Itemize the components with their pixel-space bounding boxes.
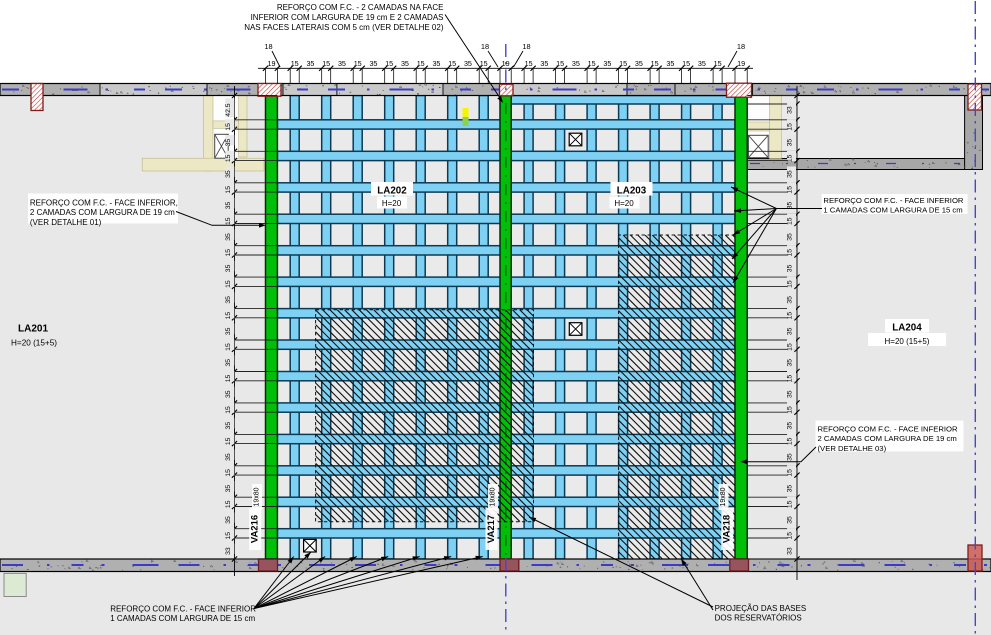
svg-text:REFORÇO COM F.C. - FACE INFERI: REFORÇO COM F.C. - FACE INFERIOR,: [30, 198, 178, 207]
svg-text:REFORÇO COM F.C. - FACE INFERI: REFORÇO COM F.C. - FACE INFERIOR: [823, 196, 964, 205]
svg-text:15: 15: [322, 59, 330, 68]
svg-text:H=20: H=20: [382, 199, 402, 208]
svg-text:15: 15: [787, 217, 794, 225]
svg-text:35: 35: [225, 264, 232, 272]
svg-text:LA203: LA203: [617, 186, 647, 197]
svg-text:35: 35: [225, 296, 232, 304]
svg-text:VA217: VA217: [486, 515, 497, 543]
svg-text:35: 35: [787, 485, 794, 493]
svg-text:1 CAMADAS COM LARGURA DE 15 cm: 1 CAMADAS COM LARGURA DE 15 cm: [110, 614, 255, 623]
svg-text:35: 35: [666, 59, 674, 68]
svg-text:LA201: LA201: [18, 324, 48, 335]
svg-text:35: 35: [225, 453, 232, 461]
svg-text:15: 15: [556, 59, 564, 68]
svg-text:15: 15: [225, 500, 232, 508]
svg-text:(VER DETALHE 03): (VER DETALHE 03): [818, 444, 887, 453]
svg-text:15: 15: [525, 59, 533, 68]
svg-text:35: 35: [225, 233, 232, 241]
svg-text:15: 15: [787, 532, 794, 540]
svg-text:H=20: H=20: [614, 199, 634, 208]
svg-text:15: 15: [225, 343, 232, 351]
svg-text:15: 15: [588, 59, 596, 68]
svg-text:15: 15: [787, 469, 794, 477]
svg-text:LA202: LA202: [377, 186, 407, 197]
svg-text:19: 19: [737, 59, 745, 68]
svg-text:35: 35: [369, 59, 377, 68]
svg-text:19: 19: [268, 59, 276, 68]
svg-text:15: 15: [417, 59, 425, 68]
svg-text:35: 35: [787, 233, 794, 241]
svg-text:15: 15: [225, 154, 232, 162]
svg-text:18: 18: [481, 42, 489, 51]
svg-text:15: 15: [225, 123, 232, 131]
svg-text:REFORÇO COM F.C. - FACE INFERI: REFORÇO COM F.C. - FACE INFERIOR: [818, 425, 959, 434]
svg-text:15: 15: [682, 59, 690, 68]
svg-text:VA216: VA216: [250, 515, 261, 543]
svg-text:35: 35: [787, 516, 794, 524]
svg-text:35: 35: [572, 59, 580, 68]
svg-text:15: 15: [385, 59, 393, 68]
svg-text:(VER DETALHE 01): (VER DETALHE 01): [30, 218, 102, 227]
svg-text:18: 18: [737, 42, 745, 51]
svg-text:35: 35: [225, 170, 232, 178]
svg-text:NAS FACES LATERAIS COM 5 cm (V: NAS FACES LATERAIS COM 5 cm (VER DETALHE…: [244, 23, 444, 32]
svg-text:35: 35: [306, 59, 314, 68]
svg-text:35: 35: [432, 59, 440, 68]
svg-text:REFORÇO COM F.C. - 2 CAMADAS N: REFORÇO COM F.C. - 2 CAMADAS NA FACE: [277, 3, 444, 12]
svg-text:33: 33: [787, 547, 794, 555]
svg-text:35: 35: [464, 59, 472, 68]
svg-text:15: 15: [225, 312, 232, 320]
svg-text:15: 15: [225, 437, 232, 445]
svg-text:15: 15: [225, 186, 232, 194]
svg-text:PROJEÇÃO DAS BASES: PROJEÇÃO DAS BASES: [715, 604, 807, 613]
svg-text:35: 35: [540, 59, 548, 68]
svg-text:35: 35: [225, 327, 232, 335]
svg-text:H=20 (15+5): H=20 (15+5): [11, 339, 57, 348]
svg-text:15: 15: [225, 375, 232, 383]
svg-text:35: 35: [635, 59, 643, 68]
svg-text:35: 35: [225, 516, 232, 524]
svg-text:15: 15: [225, 249, 232, 257]
svg-text:15: 15: [225, 532, 232, 540]
svg-text:15: 15: [787, 280, 794, 288]
svg-text:REFORÇO COM F.C. - FACE INFERI: REFORÇO COM F.C. - FACE INFERIOR: [110, 605, 256, 614]
svg-text:15: 15: [787, 437, 794, 445]
svg-text:1 CAMADAS COM LARGURA DE 15 cm: 1 CAMADAS COM LARGURA DE 15 cm: [823, 206, 962, 215]
svg-text:35: 35: [787, 170, 794, 178]
svg-text:35: 35: [225, 359, 232, 367]
svg-text:35: 35: [787, 390, 794, 398]
svg-text:35: 35: [225, 202, 232, 210]
svg-text:18: 18: [264, 42, 272, 51]
svg-text:35: 35: [787, 139, 794, 147]
svg-text:19x80: 19x80: [720, 487, 727, 506]
svg-text:35: 35: [787, 359, 794, 367]
svg-text:LA204: LA204: [892, 323, 922, 334]
svg-text:33: 33: [787, 106, 794, 114]
svg-text:15: 15: [787, 154, 794, 162]
svg-text:H=20 (15+5): H=20 (15+5): [885, 337, 930, 346]
svg-text:DOS RESERVATÓRIOS: DOS RESERVATÓRIOS: [715, 614, 802, 623]
svg-text:15: 15: [651, 59, 659, 68]
svg-text:15: 15: [714, 59, 722, 68]
svg-text:15: 15: [354, 59, 362, 68]
svg-text:35: 35: [787, 422, 794, 430]
svg-text:33: 33: [225, 547, 232, 555]
svg-text:2 CAMADAS COM LARGURA DE 19 cm: 2 CAMADAS COM LARGURA DE 19 cm: [818, 434, 957, 443]
svg-text:19x80: 19x80: [254, 487, 261, 506]
svg-text:15: 15: [787, 500, 794, 508]
svg-text:2 CAMADAS COM LARGURA DE 19 cm: 2 CAMADAS COM LARGURA DE 19 cm: [30, 208, 175, 217]
svg-text:35: 35: [787, 264, 794, 272]
svg-text:35: 35: [225, 485, 232, 493]
svg-text:35: 35: [787, 296, 794, 304]
svg-text:35: 35: [787, 453, 794, 461]
svg-text:35: 35: [698, 59, 706, 68]
svg-text:35: 35: [401, 59, 409, 68]
svg-text:15: 15: [787, 186, 794, 194]
svg-text:15: 15: [619, 59, 627, 68]
svg-text:15: 15: [225, 280, 232, 288]
svg-text:35: 35: [225, 390, 232, 398]
svg-text:15: 15: [787, 249, 794, 257]
svg-text:15: 15: [480, 59, 488, 68]
svg-text:35: 35: [787, 327, 794, 335]
svg-text:15: 15: [787, 312, 794, 320]
svg-text:18: 18: [522, 42, 530, 51]
svg-text:15: 15: [448, 59, 456, 68]
svg-text:35: 35: [225, 422, 232, 430]
svg-text:VA218: VA218: [722, 515, 733, 543]
svg-text:15: 15: [291, 59, 299, 68]
svg-text:15: 15: [787, 406, 794, 414]
svg-text:15: 15: [225, 217, 232, 225]
svg-text:42.5: 42.5: [225, 103, 232, 116]
svg-text:19: 19: [502, 59, 510, 68]
svg-text:15: 15: [787, 123, 794, 131]
svg-text:15: 15: [225, 469, 232, 477]
svg-text:15: 15: [225, 406, 232, 414]
svg-text:19x80: 19x80: [490, 487, 497, 506]
svg-text:35: 35: [603, 59, 611, 68]
svg-text:INFERIOR COM LARGURA DE 19 cm: INFERIOR COM LARGURA DE 19 cm E 2 CAMADA…: [251, 13, 444, 22]
svg-text:35: 35: [225, 139, 232, 147]
svg-text:35: 35: [338, 59, 346, 68]
svg-text:15: 15: [787, 375, 794, 383]
svg-text:15: 15: [787, 343, 794, 351]
